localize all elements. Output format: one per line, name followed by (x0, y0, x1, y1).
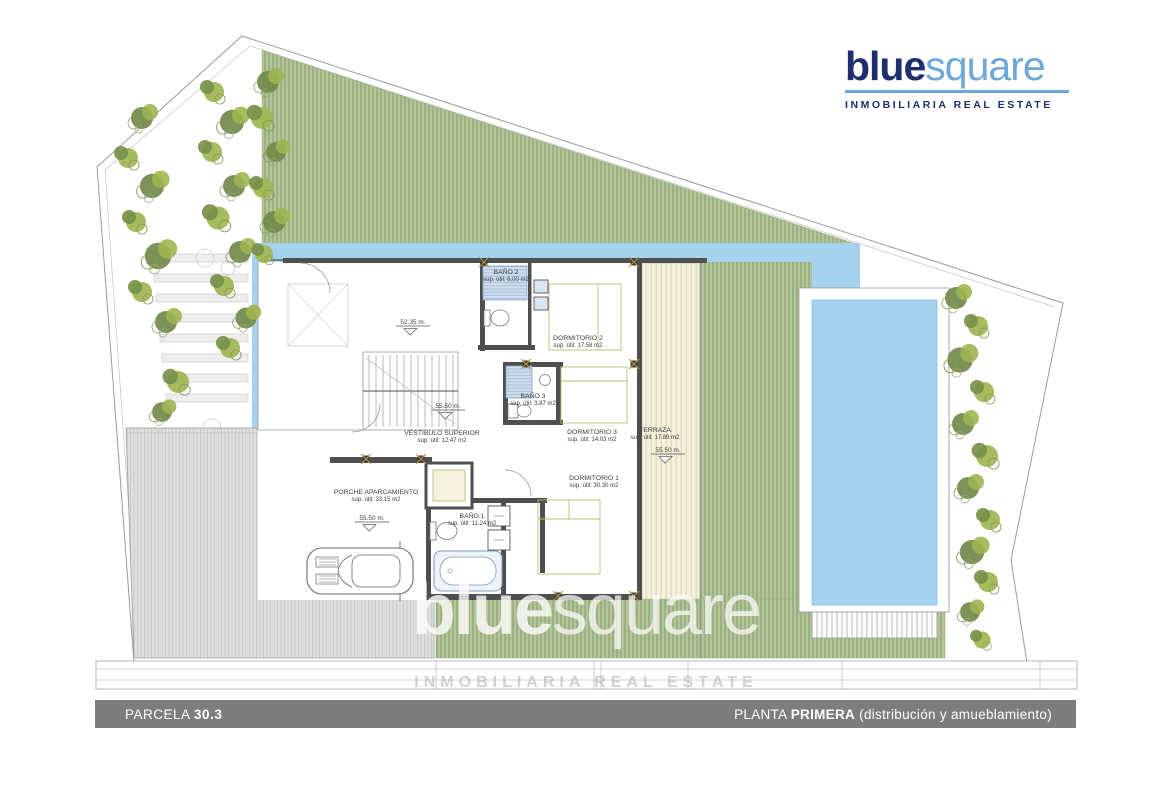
svg-text:sup. útil: 6.00 m2: sup. útil: 6.00 m2 (483, 277, 529, 283)
svg-text:VESTIBULO SUPERIOR: VESTIBULO SUPERIOR (404, 430, 480, 437)
logo-divider (845, 90, 1069, 93)
logo-square-text: square (925, 43, 1044, 89)
bluesquare-logo: bluesquare INMOBILIARIA REAL ESTATE (845, 46, 1069, 111)
svg-text:sup. útil: 11.24 m2: sup. útil: 11.24 m2 (448, 521, 497, 527)
logo-blue-text: blue (845, 43, 925, 89)
svg-text:TERRAZA: TERRAZA (639, 427, 671, 434)
svg-text:DORMITORIO 3: DORMITORIO 3 (567, 429, 617, 436)
svg-text:55.50 m.: 55.50 m. (655, 447, 680, 454)
svg-text:BAÑO 2: BAÑO 2 (494, 267, 519, 276)
svg-text:sup. útil: 3.87 m2: sup. útil: 3.87 m2 (510, 401, 556, 407)
svg-text:sup. útil: 14.03 m2: sup. útil: 14.03 m2 (567, 437, 617, 443)
elevator-shaft (426, 463, 472, 508)
logo-tagline: INMOBILIARIA REAL ESTATE (845, 99, 1069, 111)
svg-text:BAÑO 1: BAÑO 1 (460, 511, 485, 520)
svg-text:DORMITORIO 2: DORMITORIO 2 (553, 335, 603, 342)
svg-text:sup. útil: 30.30 m2: sup. útil: 30.30 m2 (569, 483, 619, 489)
staircase (363, 352, 458, 430)
swimming-pool (799, 288, 949, 612)
svg-text:PORCHE APARCAMIENTO: PORCHE APARCAMIENTO (334, 489, 418, 496)
floor-note: (distribución y amueblamiento) (859, 707, 1052, 722)
logo-wordmark: bluesquare (845, 46, 1069, 87)
svg-text:sup. útil: 17.89 m2: sup. útil: 17.89 m2 (630, 435, 680, 441)
svg-text:55.50 m.: 55.50 m. (435, 403, 460, 410)
svg-text:DORMITORIO 1: DORMITORIO 1 (569, 475, 619, 482)
svg-text:sup. útil: 17.58 m2: sup. útil: 17.58 m2 (553, 343, 603, 349)
title-bar: PARCELA 30.3 PLANTA PRIMERA (distribució… (95, 700, 1076, 728)
parcel-title: PARCELA 30.3 (95, 707, 222, 722)
site-strip (96, 661, 1077, 689)
pool-deck (812, 612, 937, 638)
svg-text:52.35 m.: 52.35 m. (400, 319, 425, 326)
car-top-view (307, 541, 413, 601)
svg-text:BAÑO 3: BAÑO 3 (521, 391, 546, 400)
svg-text:sup. útil: 33.15 m2: sup. útil: 33.15 m2 (351, 497, 401, 503)
sink-3 (540, 375, 551, 386)
parcel-label: PARCELA (125, 707, 190, 722)
bathtub (434, 551, 502, 591)
floor-label: PLANTA (734, 707, 787, 722)
floor-plan-svg: 52.35 m. 55.50 m. 55.50 m. 55.50 m. BAÑO… (0, 0, 1170, 785)
floor-value: PRIMERA (791, 707, 855, 722)
floor-title: PLANTA PRIMERA (distribución y amueblami… (734, 707, 1076, 722)
svg-text:sup. útil: 12.47 m2: sup. útil: 12.47 m2 (417, 438, 467, 444)
toilet-2 (491, 310, 509, 326)
floor-plan-page: 52.35 m. 55.50 m. 55.50 m. 55.50 m. BAÑO… (0, 0, 1170, 785)
svg-text:55.50 m.: 55.50 m. (359, 515, 384, 522)
parcel-value: 30.3 (194, 707, 222, 722)
